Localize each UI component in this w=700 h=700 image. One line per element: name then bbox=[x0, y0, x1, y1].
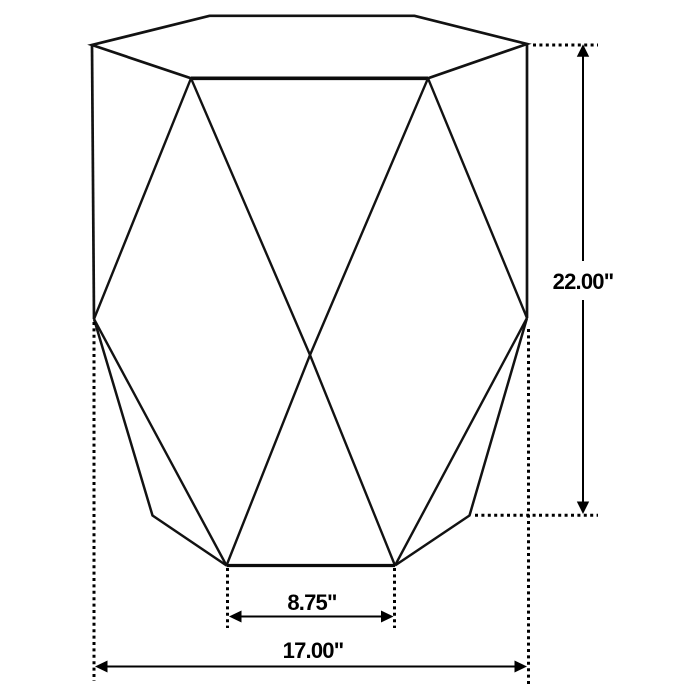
svg-text:22.00": 22.00" bbox=[553, 269, 614, 294]
svg-text:8.75": 8.75" bbox=[287, 590, 336, 615]
svg-text:17.00": 17.00" bbox=[283, 638, 344, 663]
